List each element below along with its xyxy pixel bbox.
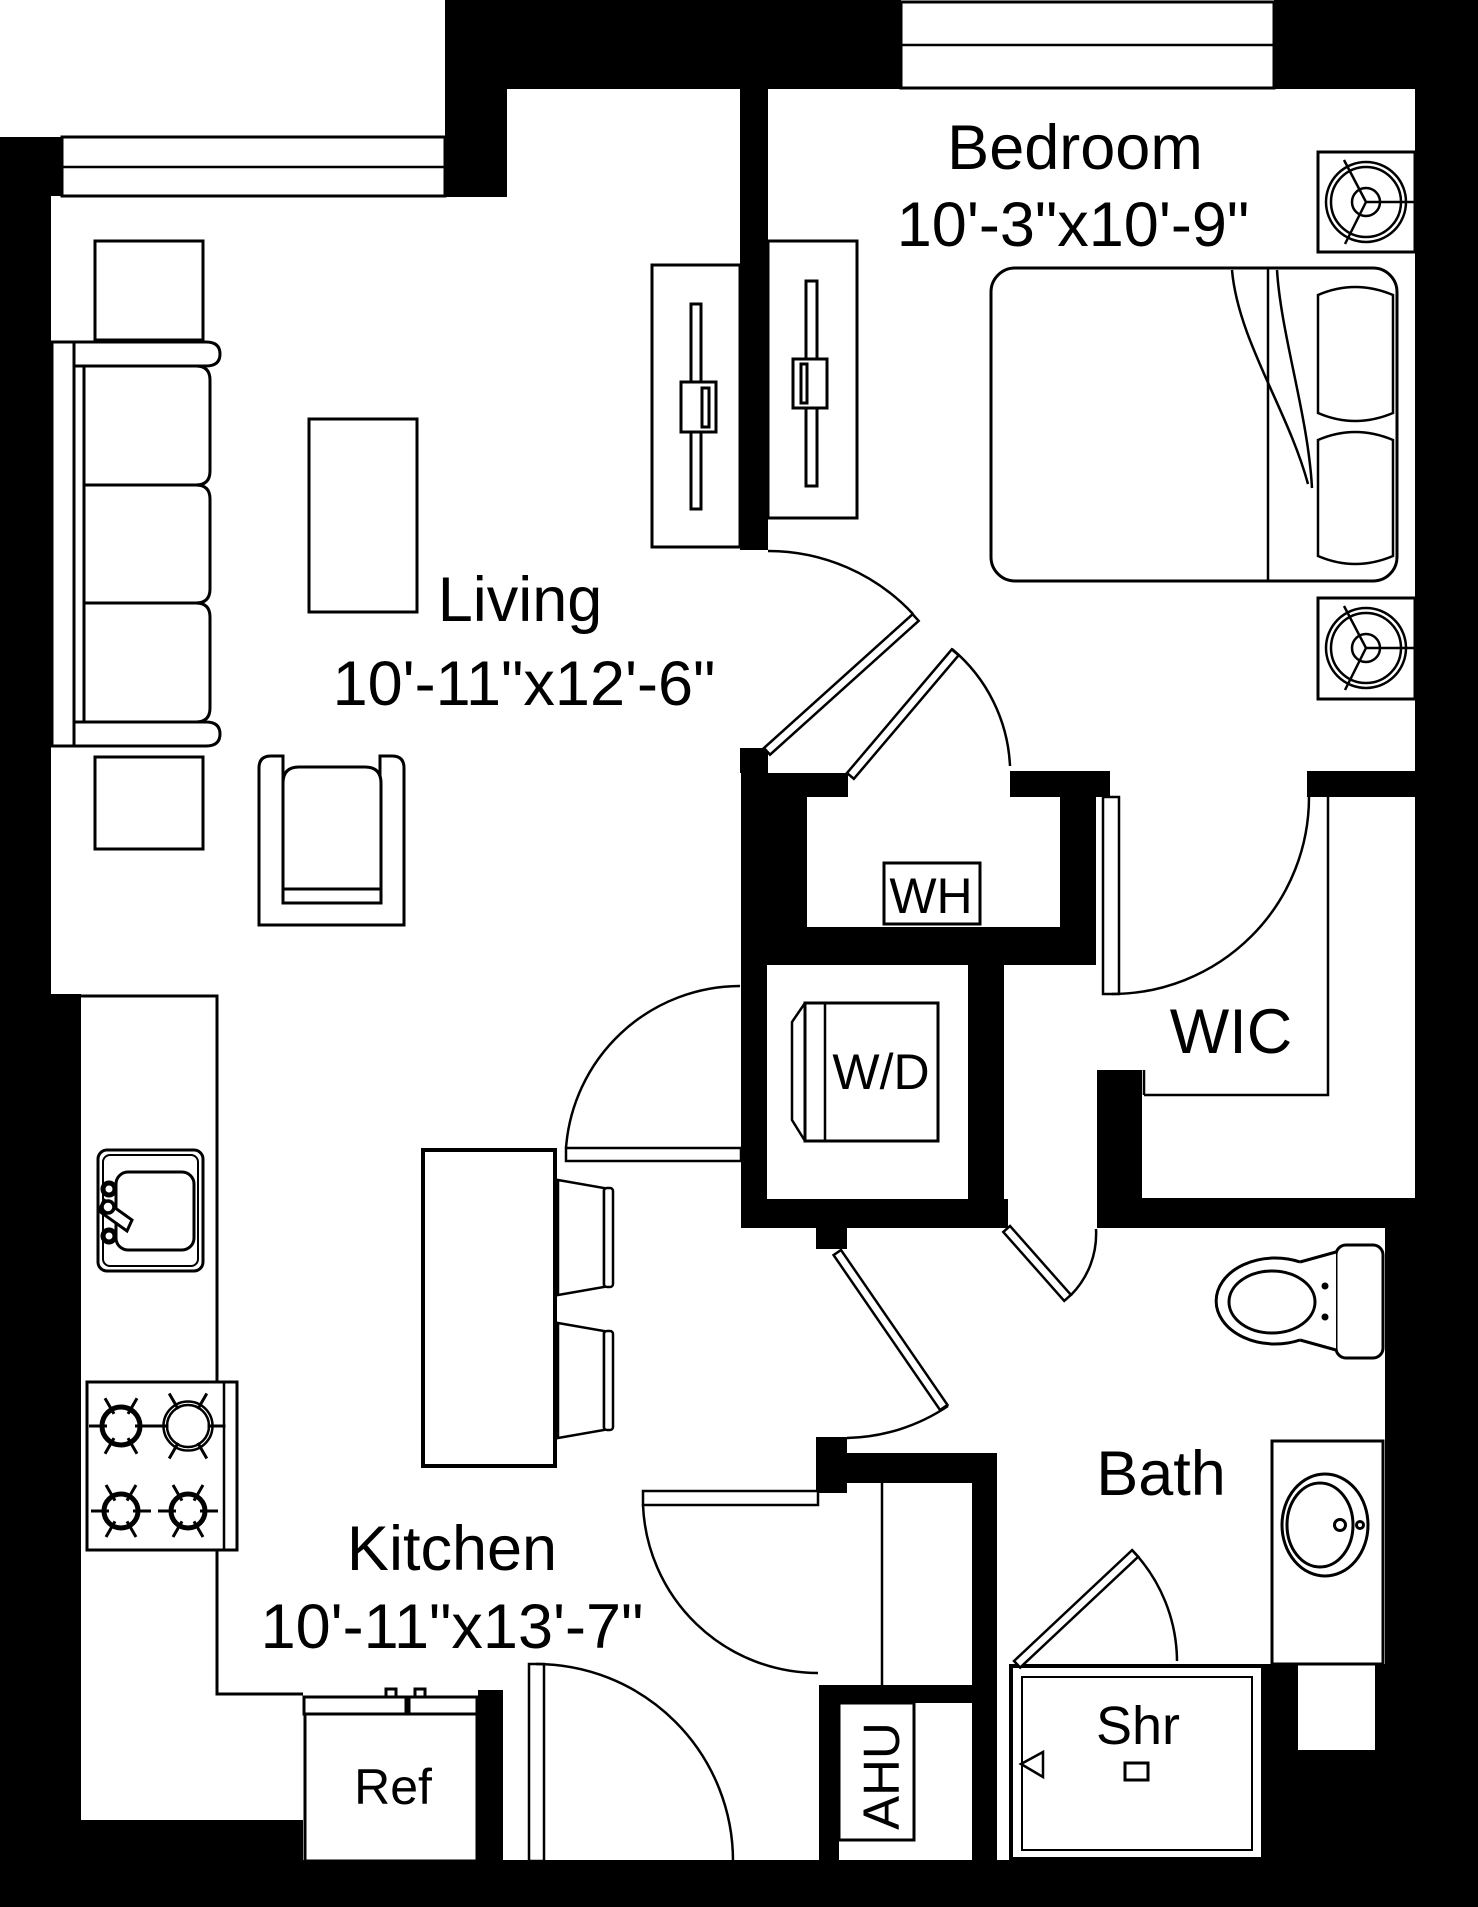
svg-text:Living: Living [438,565,603,635]
svg-text:Bedroom: Bedroom [947,113,1203,183]
svg-text:W/D: W/D [832,1044,929,1100]
svg-text:Shr: Shr [1096,1696,1180,1756]
svg-text:AHU: AHU [853,1722,910,1830]
svg-text:WIC: WIC [1170,997,1292,1067]
svg-text:10'-11"x12'-6": 10'-11"x12'-6" [333,649,716,719]
svg-text:10'-11"x13'-7": 10'-11"x13'-7" [261,1592,644,1662]
svg-text:10'-3"x10'-9": 10'-3"x10'-9" [897,190,1249,260]
svg-text:Bath: Bath [1096,1439,1226,1509]
svg-text:Ref: Ref [354,1759,432,1815]
svg-text:Kitchen: Kitchen [347,1514,557,1584]
svg-text:WH: WH [889,868,972,924]
